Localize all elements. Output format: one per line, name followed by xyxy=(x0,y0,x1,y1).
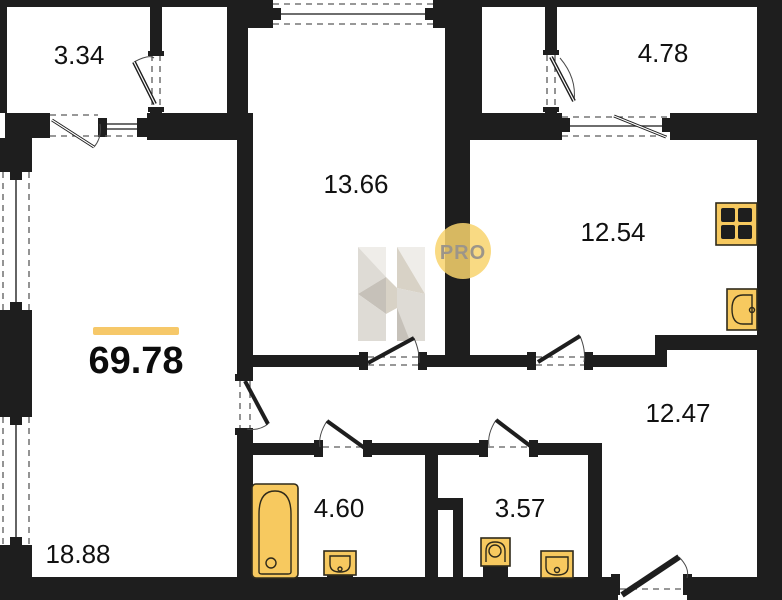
total-area-underline xyxy=(93,327,179,335)
pro-badge-label: PRO xyxy=(440,242,486,264)
room-label-kitchen: 12.54 xyxy=(580,217,645,247)
door-bathroom xyxy=(314,421,372,457)
toilet-icon xyxy=(481,538,510,580)
room-label-wc: 3.57 xyxy=(495,493,546,523)
bathtub-icon xyxy=(252,484,298,578)
door-entrance xyxy=(611,557,692,595)
room-label-balcony-top-right: 4.78 xyxy=(638,38,689,68)
total-area-label: 69.78 xyxy=(88,340,183,382)
bathroom-sink-icon xyxy=(324,551,356,578)
door-wc xyxy=(479,420,538,457)
window-kitchen-top xyxy=(562,116,670,137)
logo-h-icon xyxy=(358,247,425,341)
door-balcony-topleft xyxy=(134,51,164,112)
door-hall-living xyxy=(235,374,268,435)
room-label-room-center: 13.66 xyxy=(323,169,388,199)
door-room-center xyxy=(359,338,427,370)
room-label-hall: 12.47 xyxy=(645,398,710,428)
floorplan-canvas: PRO 3.34 13.66 4.78 12.54 18.88 4.60 3.5… xyxy=(0,0,782,600)
floorplan-drawing: PRO 3.34 13.66 4.78 12.54 18.88 4.60 3.5… xyxy=(0,0,782,600)
room-label-balcony-top-left: 3.34 xyxy=(54,40,105,70)
window-left-lower xyxy=(3,417,29,545)
stove-icon xyxy=(716,203,757,245)
door-kitchen xyxy=(527,336,593,370)
wc-sink-icon xyxy=(541,551,573,578)
room-label-living-room: 18.88 xyxy=(45,539,110,569)
window-balcony-left xyxy=(50,115,137,147)
pro-badge: PRO xyxy=(435,223,491,279)
window-top-center xyxy=(273,4,433,24)
window-left-upper xyxy=(3,172,29,310)
door-niche-topright xyxy=(543,50,574,112)
kitchen-sink-icon xyxy=(727,289,757,330)
room-label-bathroom: 4.60 xyxy=(314,493,365,523)
total-area: 69.78 xyxy=(88,327,183,382)
